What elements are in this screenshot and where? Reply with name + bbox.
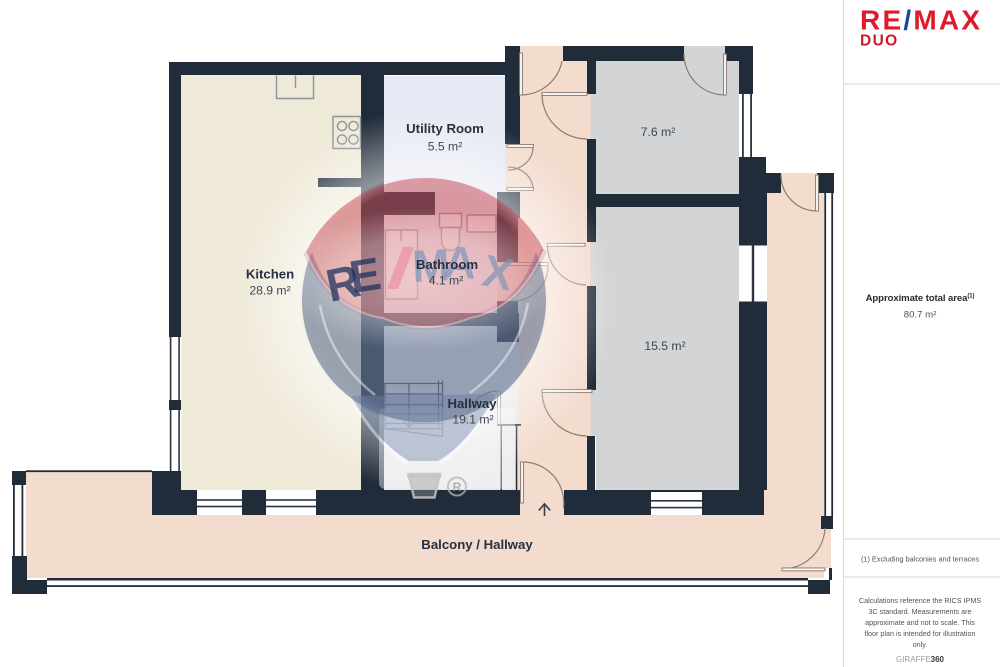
svg-text:Approximate total area(1): Approximate total area(1) [866, 293, 975, 304]
svg-text:15.5 m²: 15.5 m² [644, 339, 685, 353]
svg-text:R: R [453, 480, 462, 494]
svg-text:Utility Room: Utility Room [406, 121, 484, 136]
svg-text:(1) Excluding balconies and te: (1) Excluding balconies and terraces [861, 555, 979, 564]
svg-text:7.6 m²: 7.6 m² [641, 125, 676, 139]
svg-text:5.5 m²: 5.5 m² [428, 140, 463, 154]
svg-text:Hallway: Hallway [447, 396, 497, 411]
svg-text:approximate and not to scale.: approximate and not to scale. This [865, 618, 975, 627]
svg-text:only.: only. [913, 640, 928, 649]
svg-text:DUO: DUO [860, 33, 899, 50]
svg-text:4.1 m²: 4.1 m² [429, 274, 464, 288]
svg-text:RE/MAX: RE/MAX [860, 5, 980, 36]
svg-text:28.9 m²: 28.9 m² [249, 284, 290, 298]
svg-text:Calculations reference the RIC: Calculations reference the RICS IPMS [859, 596, 981, 605]
svg-text:3C standard. Measurements are: 3C standard. Measurements are [868, 607, 971, 616]
svg-text:80.7 m²: 80.7 m² [904, 310, 937, 321]
svg-text:19.1 m²: 19.1 m² [452, 413, 493, 427]
svg-text:Kitchen: Kitchen [246, 267, 294, 282]
svg-text:Bathroom: Bathroom [416, 257, 478, 272]
svg-text:floor plan is intended for ill: floor plan is intended for illustration [864, 629, 975, 638]
svg-text:Balcony / Hallway: Balcony / Hallway [421, 537, 533, 552]
svg-text:GIRAFFE360: GIRAFFE360 [896, 655, 945, 664]
